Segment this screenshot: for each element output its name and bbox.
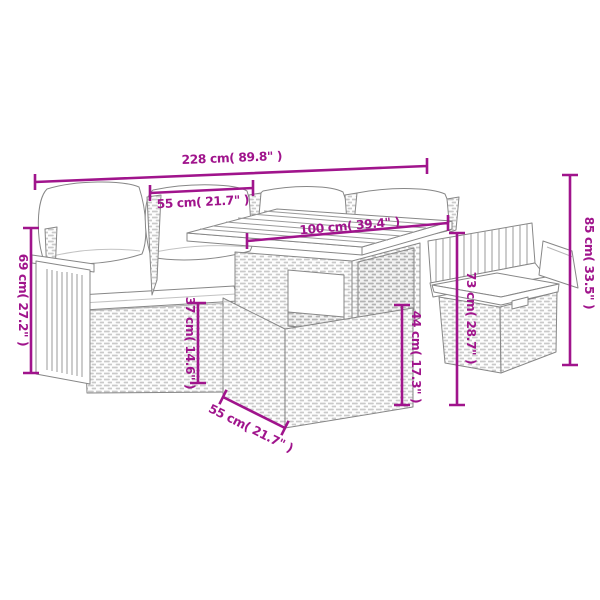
diagram-canvas: 228 cm( 89.8" ) 55 cm( 21.7" ) 100 cm( 3… xyxy=(0,0,600,600)
dimension-label-overall-width: 228 cm( 89.8" ) xyxy=(181,149,282,167)
sofa-rattan-base xyxy=(84,297,232,393)
furniture-illustration xyxy=(32,182,578,428)
dimension-label-table-base-height: 44 cm( 17.3" ) xyxy=(409,311,423,403)
table-base-front xyxy=(285,308,413,428)
furniture-dimension-diagram: 228 cm( 89.8" ) 55 cm( 21.7" ) 100 cm( 3… xyxy=(0,0,600,600)
dimension-label-table-height: 73 cm( 28.7" ) xyxy=(464,272,478,364)
dimension-label-sofa-height: 69 cm( 27.2" ) xyxy=(16,254,30,346)
dimension-label-overall-height: 85 cm( 33.5" ) xyxy=(582,217,596,309)
bench-wood-armrest xyxy=(539,241,578,288)
footstool xyxy=(432,273,559,373)
dimension-label-seat-base-height: 37 cm( 14.6" ) xyxy=(183,297,197,389)
